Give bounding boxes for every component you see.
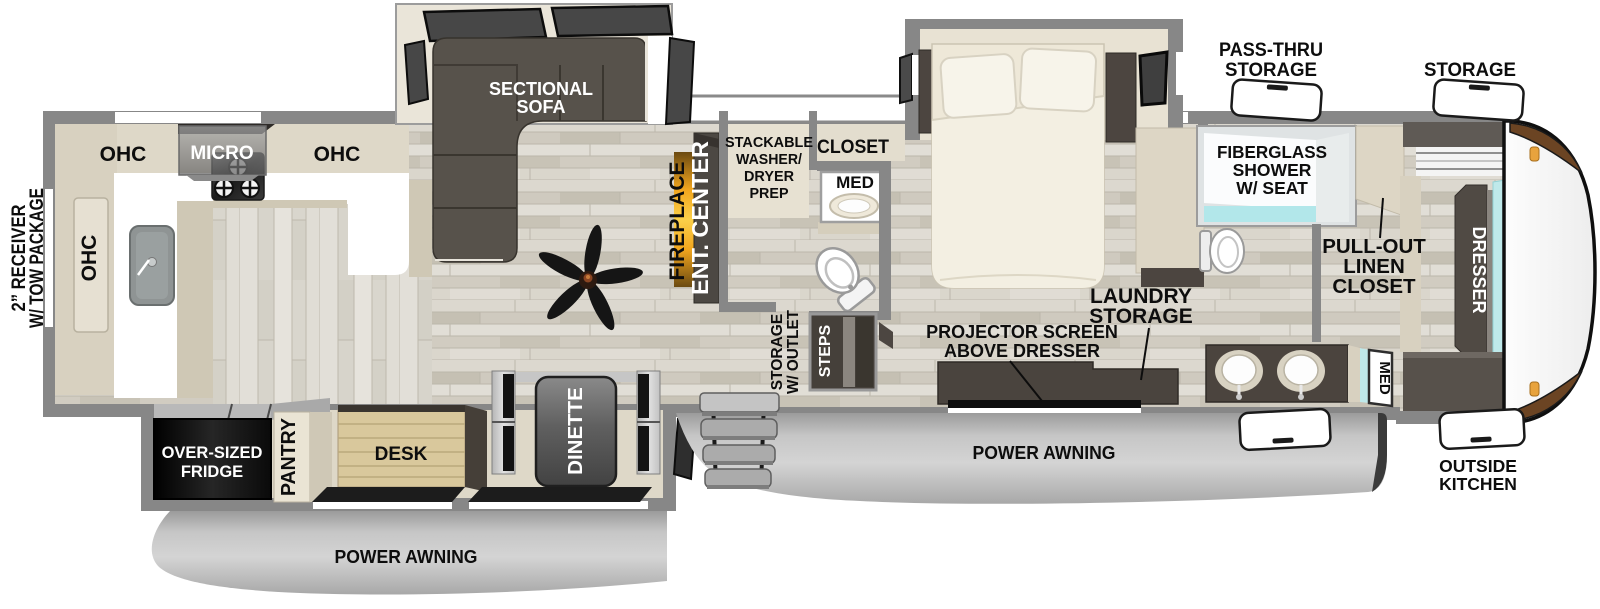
- svg-text:MED: MED: [836, 173, 874, 192]
- svg-text:SOFA: SOFA: [516, 97, 565, 117]
- svg-text:FRIDGE: FRIDGE: [181, 463, 243, 481]
- svg-text:POWER AWNING: POWER AWNING: [335, 547, 478, 567]
- svg-text:STORAGE: STORAGE: [1225, 60, 1317, 81]
- svg-text:W/ SEAT: W/ SEAT: [1236, 178, 1308, 198]
- svg-text:STEPS: STEPS: [817, 324, 834, 377]
- svg-text:DINETTE: DINETTE: [564, 387, 587, 475]
- svg-text:STORAGE: STORAGE: [1424, 60, 1516, 81]
- svg-text:OHC: OHC: [314, 143, 361, 166]
- svg-text:STORAGE: STORAGE: [769, 314, 786, 390]
- svg-text:PANTRY: PANTRY: [278, 417, 300, 496]
- svg-text:DESK: DESK: [375, 444, 428, 465]
- svg-text:FIREPLACE: FIREPLACE: [666, 161, 689, 280]
- svg-text:OHC: OHC: [100, 143, 147, 166]
- svg-text:DRYER: DRYER: [744, 168, 794, 185]
- svg-text:OHC: OHC: [78, 235, 101, 282]
- svg-text:STACKABLE: STACKABLE: [725, 134, 813, 151]
- svg-text:OUTSIDE: OUTSIDE: [1439, 456, 1517, 476]
- svg-text:MICRO: MICRO: [190, 143, 253, 164]
- svg-text:SHOWER: SHOWER: [1233, 160, 1312, 180]
- svg-text:KITCHEN: KITCHEN: [1439, 474, 1517, 494]
- svg-text:ENT. CENTER: ENT. CENTER: [687, 141, 713, 295]
- svg-text:OVER-SIZED: OVER-SIZED: [162, 444, 263, 462]
- svg-text:SECTIONAL: SECTIONAL: [489, 79, 593, 99]
- svg-text:PREP: PREP: [750, 185, 789, 202]
- svg-text:MED: MED: [1376, 361, 1393, 395]
- svg-text:WASHER/: WASHER/: [736, 151, 803, 168]
- svg-text:FIBERGLASS: FIBERGLASS: [1217, 142, 1327, 162]
- svg-text:ABOVE DRESSER: ABOVE DRESSER: [944, 341, 1100, 361]
- svg-text:PROJECTOR SCREEN: PROJECTOR SCREEN: [926, 322, 1118, 342]
- svg-text:W/ TOW PACKAGE: W/ TOW PACKAGE: [27, 188, 48, 328]
- svg-text:PASS-THRU: PASS-THRU: [1219, 40, 1323, 61]
- svg-text:CLOSET: CLOSET: [817, 136, 889, 158]
- svg-text:POWER AWNING: POWER AWNING: [973, 443, 1116, 463]
- svg-text:W/ OUTLET: W/ OUTLET: [785, 309, 802, 394]
- svg-text:DRESSER: DRESSER: [1469, 226, 1489, 313]
- svg-text:CLOSET: CLOSET: [1332, 275, 1416, 298]
